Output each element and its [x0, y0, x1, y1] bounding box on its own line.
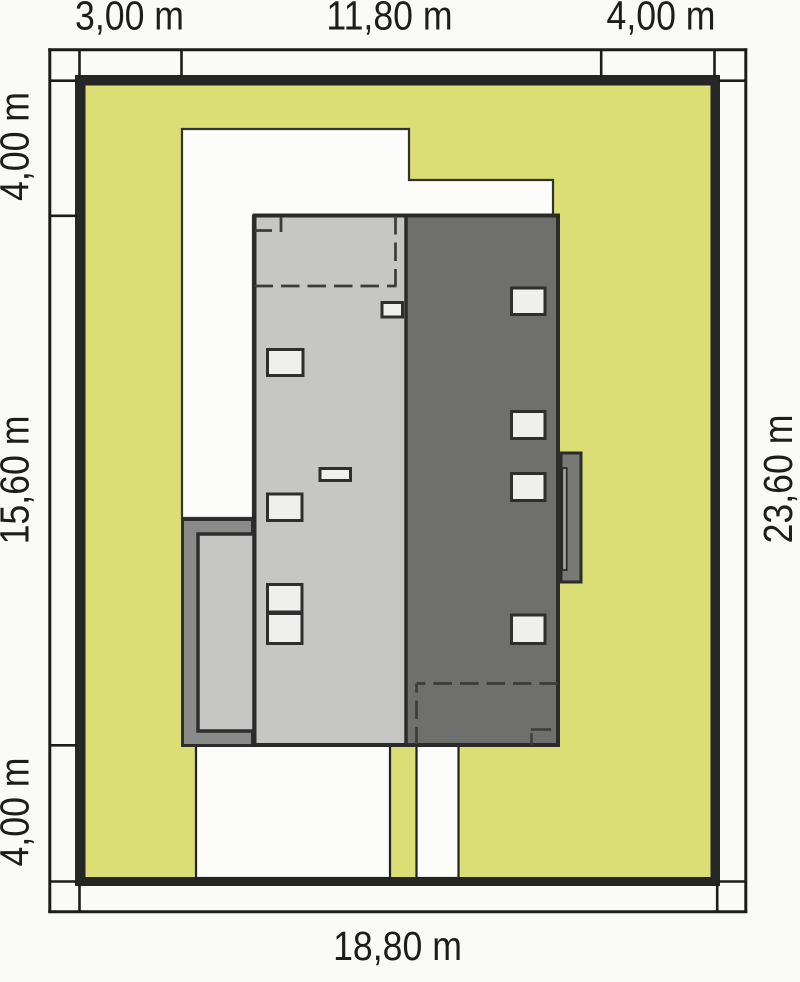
svg-text:4,00 m: 4,00 m — [0, 758, 38, 867]
svg-text:4,00 m: 4,00 m — [0, 92, 38, 201]
svg-text:11,80 m: 11,80 m — [326, 0, 452, 39]
svg-text:23,60 m: 23,60 m — [756, 415, 800, 544]
svg-text:18,80 m: 18,80 m — [333, 924, 462, 970]
svg-text:4,00 m: 4,00 m — [607, 0, 716, 39]
svg-text:3,00 m: 3,00 m — [75, 0, 184, 39]
svg-text:15,60 m: 15,60 m — [0, 416, 38, 545]
